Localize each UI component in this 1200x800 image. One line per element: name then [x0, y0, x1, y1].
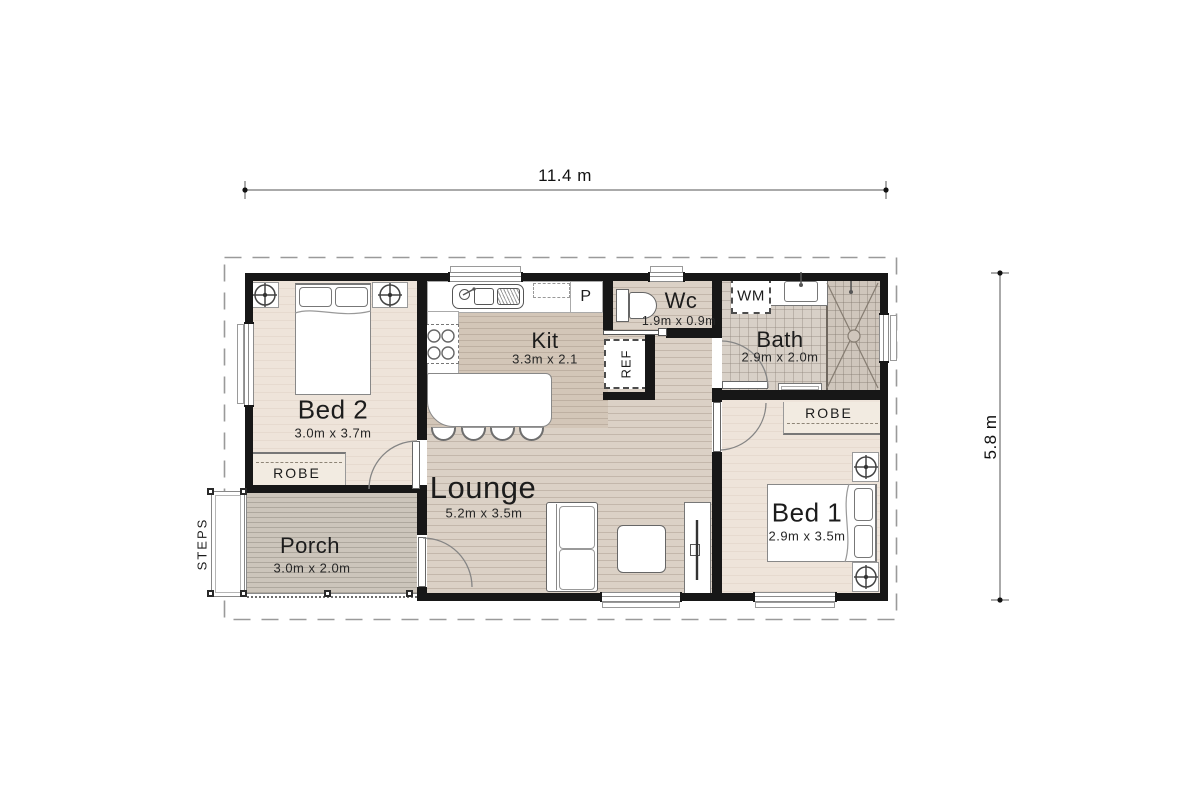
wall-exterior-bottom: [417, 593, 600, 601]
wall-fridge-nook-bottom: [603, 392, 655, 400]
bed1-pillow: [854, 525, 873, 558]
wall-bed2-bottom: [245, 485, 427, 493]
window-bath: [879, 313, 889, 363]
wall-exterior-top: [523, 273, 648, 281]
shower-floor: [826, 281, 882, 390]
bed2-pillow: [335, 287, 368, 307]
porch-post: [207, 590, 214, 597]
room-size-porch: 3.0m x 2.0m: [273, 561, 350, 576]
steps-platform: [211, 491, 245, 597]
porch-post: [240, 590, 247, 597]
front-door: [418, 537, 426, 587]
wall-bed1-top: [712, 390, 888, 400]
steps-inner: [215, 495, 241, 593]
window-sill: [755, 602, 835, 608]
bed2-door: [412, 441, 420, 489]
bed1-side-table: [852, 562, 879, 592]
tv: [690, 544, 700, 556]
window-sill: [602, 602, 680, 608]
room-label-lounge: Lounge: [430, 470, 536, 506]
wall-bed2-right: [417, 273, 427, 440]
bed2-side-table: [372, 282, 408, 308]
porch-post: [240, 488, 247, 495]
floor-plan: 11.4 m 5.8 m Bed 2 3.0m x 3.7m ROBE STEP…: [0, 0, 1200, 800]
sofa: [546, 502, 598, 592]
cooktop: [426, 324, 459, 364]
sink-tap-knob: [459, 289, 470, 300]
room-size-wc: 1.9m x 0.9m: [642, 314, 716, 328]
sink-drainer: [497, 288, 520, 305]
porch-post: [207, 488, 214, 495]
room-size-bed1: 2.9m x 3.5m: [768, 529, 845, 544]
window-sill: [890, 315, 897, 361]
wall-porch-right: [417, 490, 427, 535]
window-bed1: [753, 592, 837, 602]
window-kitchen: [448, 272, 523, 282]
fridge-label: REF: [619, 350, 634, 379]
bed1-door: [713, 402, 721, 452]
vanity-basin: [784, 281, 818, 302]
window-sill: [237, 324, 244, 404]
wall-fridge-nook-right: [645, 330, 655, 400]
washing-machine-label: WM: [737, 288, 765, 305]
window-bed2: [244, 322, 254, 407]
porch-edge-bottom: [247, 593, 417, 594]
room-label-bed1: Bed 1: [772, 498, 842, 529]
robe-label-bed2: ROBE: [273, 465, 321, 481]
pantry-label: P: [580, 288, 591, 306]
room-size-kitchen: 3.3m x 2.1: [512, 352, 578, 367]
porch-edge-left: [246, 493, 247, 594]
pantry-bench-dashed: [533, 283, 570, 298]
room-label-bed2: Bed 2: [298, 395, 368, 426]
room-label-wc: Wc: [665, 288, 698, 314]
wall-exterior-left: [245, 407, 253, 493]
window-wc: [648, 272, 685, 282]
porch-post: [324, 590, 331, 597]
sofa-cushion: [559, 506, 595, 549]
room-label-porch: Porch: [280, 533, 340, 559]
overall-width-label: 11.4 m: [538, 166, 592, 186]
sink-bowl: [474, 288, 494, 305]
robe-label-bed1: ROBE: [805, 405, 853, 421]
porch-edge-dotted: [247, 596, 417, 598]
bed2-pillow: [299, 287, 332, 307]
sofa-backrest: [556, 504, 557, 590]
room-label-kitchen: Kit: [531, 328, 558, 354]
wc-sliding-door: [603, 330, 660, 335]
wall-bed1-left: [712, 452, 722, 601]
wall-porch-right: [417, 587, 427, 601]
bed1-pillow: [854, 488, 873, 521]
room-size-bed2: 3.0m x 3.7m: [294, 426, 371, 441]
window-lounge: [600, 592, 682, 602]
wc-door-handle: [658, 328, 667, 336]
coffee-table: [617, 525, 666, 573]
bed1-side-table: [852, 452, 879, 482]
wall-exterior-left: [245, 273, 253, 322]
overall-height-label: 5.8 m: [981, 414, 1001, 459]
kitchen-island: [427, 373, 552, 427]
bed2-side-table: [251, 282, 279, 308]
wall-exterior-right: [880, 273, 888, 313]
wall-wc-right: [712, 273, 722, 338]
room-size-lounge: 5.2m x 3.5m: [445, 506, 522, 521]
wall-wc-left: [603, 273, 613, 333]
toilet-cistern: [616, 289, 629, 322]
room-size-bath: 2.9m x 2.0m: [741, 350, 818, 365]
steps-label: STEPS: [195, 518, 210, 571]
porch-post: [406, 590, 413, 597]
bath-door: [722, 381, 768, 389]
sofa-cushion: [559, 549, 595, 590]
